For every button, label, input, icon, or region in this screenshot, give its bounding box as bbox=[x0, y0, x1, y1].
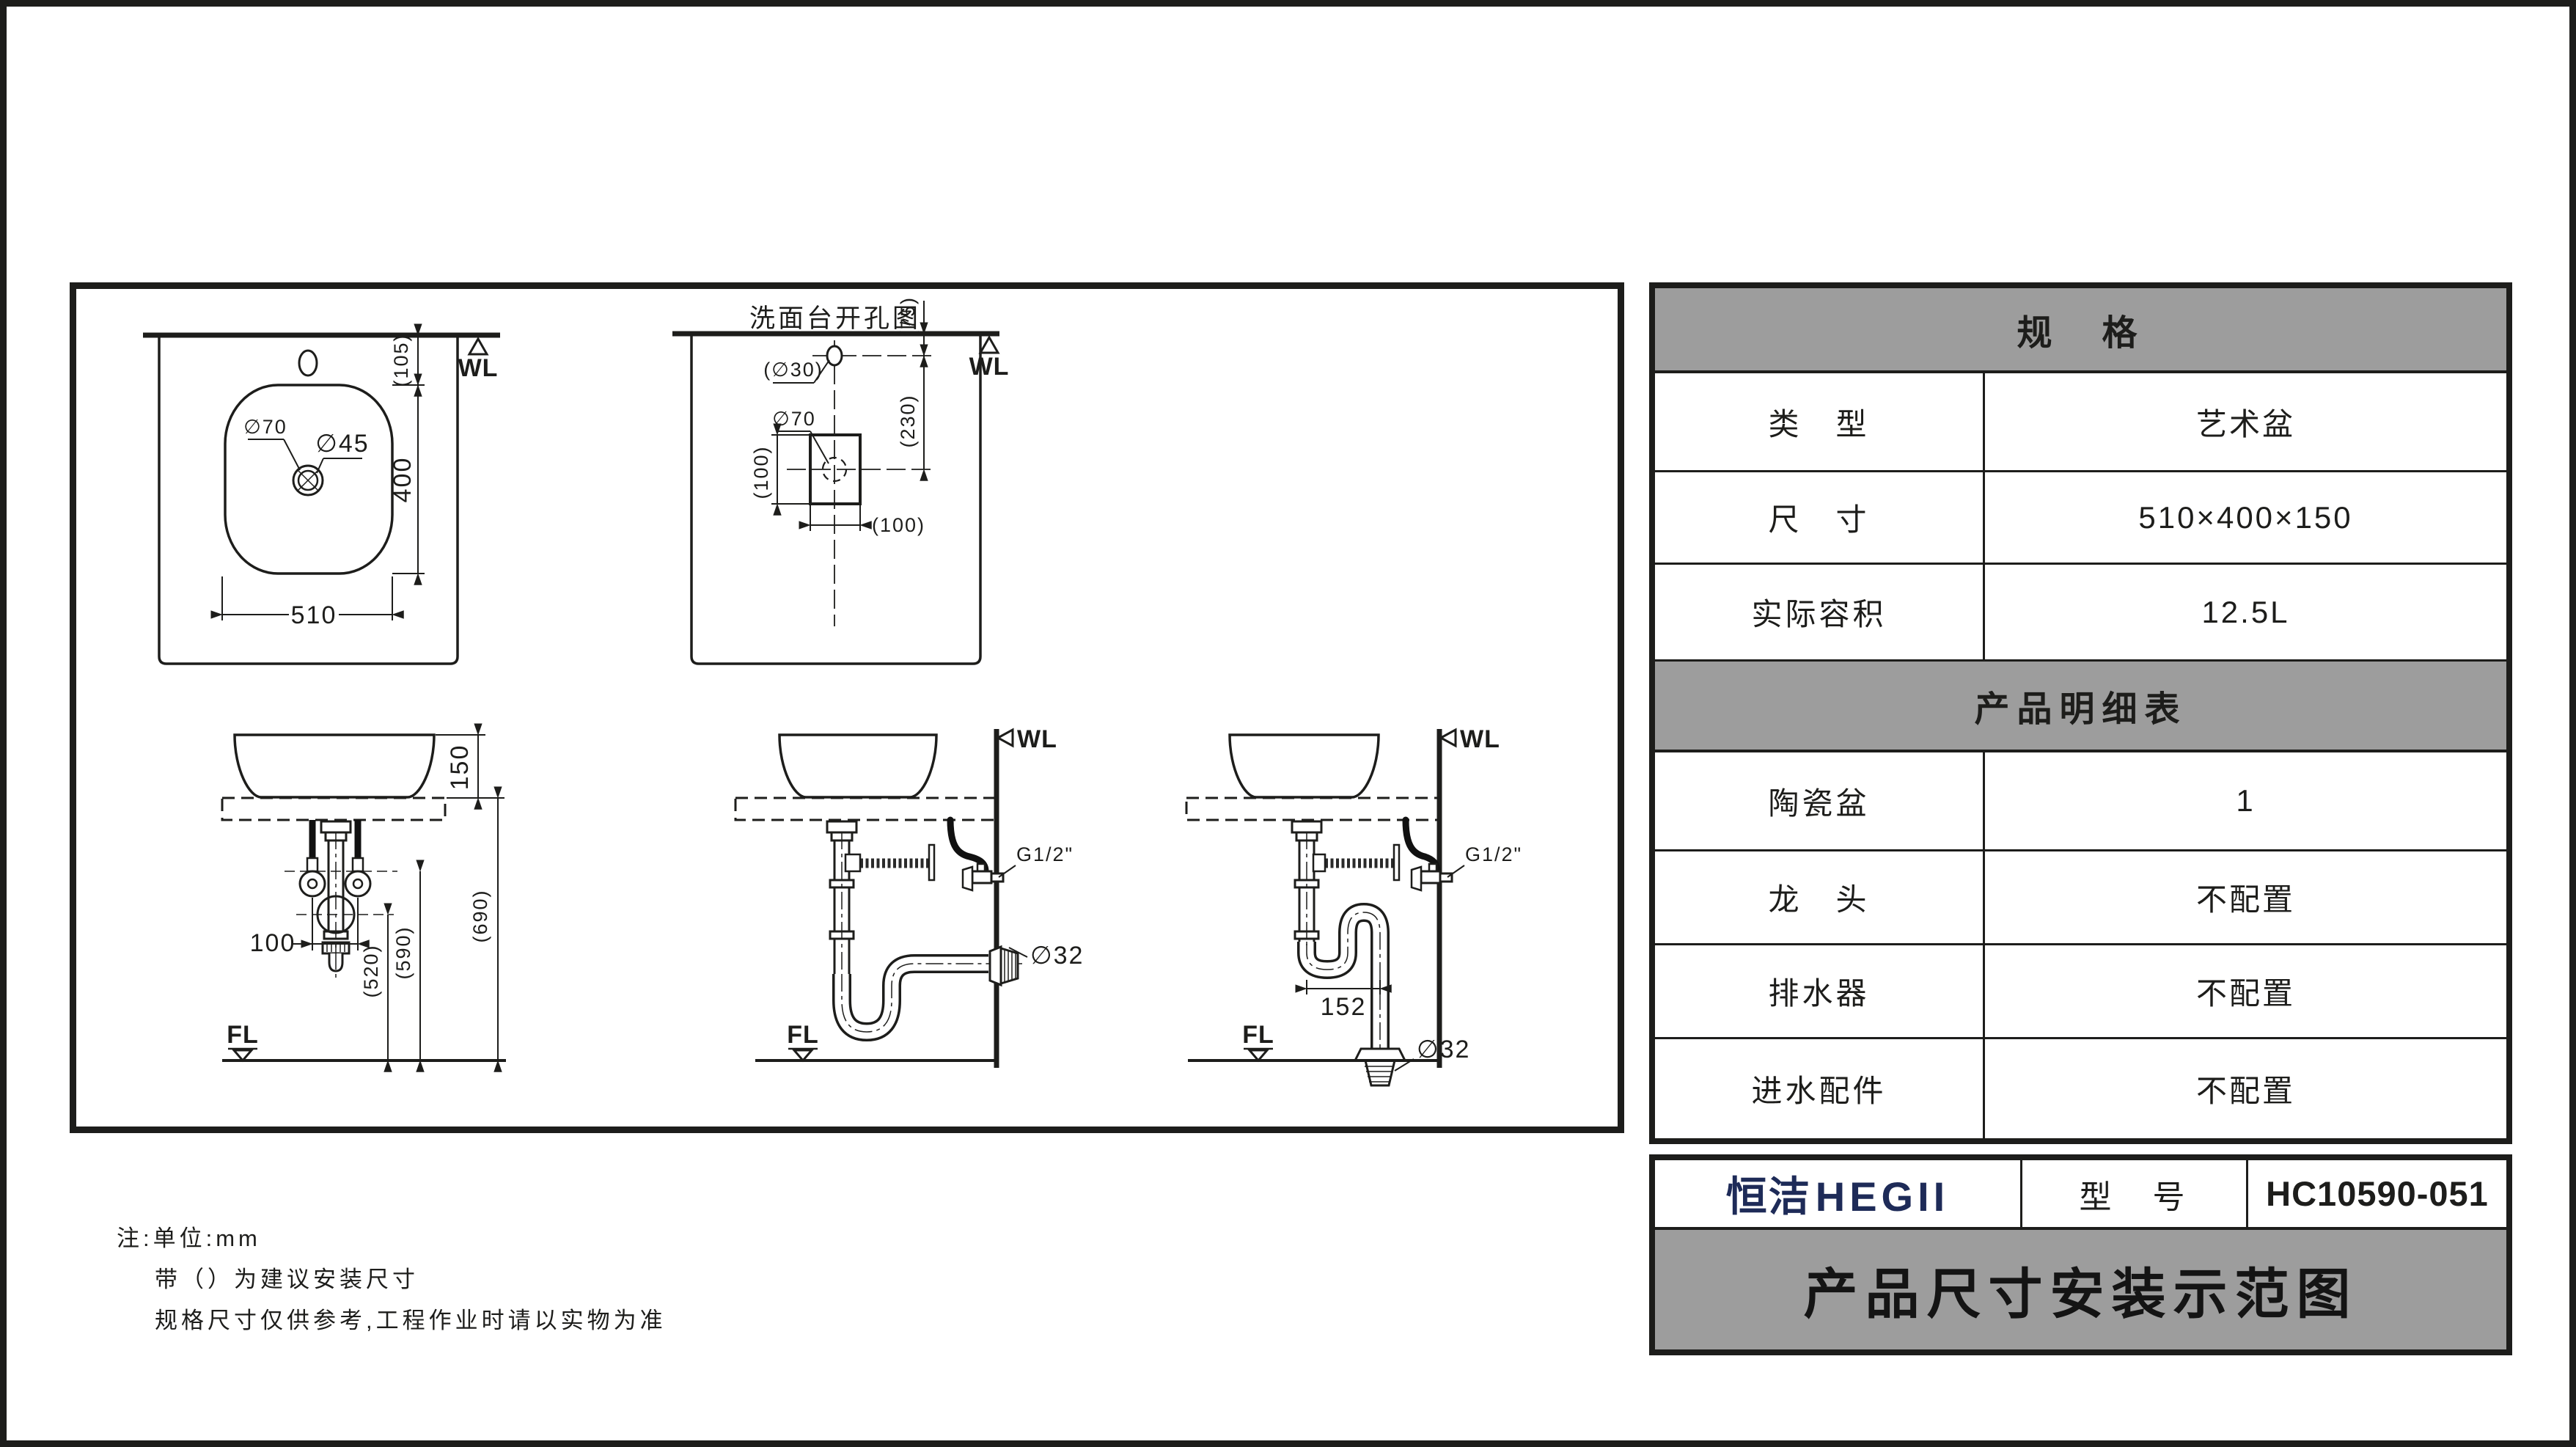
row-label: 尺 寸 bbox=[1655, 472, 1985, 563]
wall-level-marker-icon bbox=[1441, 730, 1456, 746]
document-title: 产品尺寸安装示范图 bbox=[1655, 1230, 2506, 1349]
drain-dia-label: ∅70 bbox=[243, 416, 287, 438]
model-label: 型 号 bbox=[2022, 1160, 2248, 1227]
table-row: 排水器 不配置 bbox=[1655, 945, 2506, 1039]
drawing-frame: WL ∅70 ∅45 (105) 400 bbox=[70, 282, 1624, 1133]
row-value: 不配置 bbox=[1985, 1039, 2506, 1138]
brand-en: HEGII bbox=[1816, 1173, 1949, 1220]
cutout-view-title: 洗面台开孔图 bbox=[749, 304, 921, 333]
note-line: 注:单位:mm bbox=[117, 1218, 667, 1259]
supply-thread-label: G1/2" bbox=[1016, 843, 1074, 865]
dim-100: 100 bbox=[250, 929, 296, 957]
faucet-hole bbox=[827, 346, 842, 365]
dim-400: 400 bbox=[389, 457, 417, 503]
table-row: 进水配件 不配置 bbox=[1655, 1039, 2506, 1138]
title-block: 恒洁HEGII 型 号 HC10590-051 产品尺寸安装示范图 bbox=[1649, 1154, 2512, 1355]
note-line: 规格尺寸仅供参考,工程作业时请以实物为准 bbox=[155, 1300, 667, 1341]
floor-drain-view: WL 152 bbox=[1186, 725, 1522, 1085]
wall-valve bbox=[1421, 871, 1440, 883]
title-block-top-row: 恒洁HEGII 型 号 HC10590-051 bbox=[1655, 1160, 2506, 1230]
drain-dia-label: ∅32 bbox=[1030, 942, 1084, 970]
supply-thread-label: G1/2" bbox=[1465, 843, 1522, 865]
floor-level-marker-icon bbox=[794, 1050, 812, 1060]
dim-100-v: (100) bbox=[750, 445, 772, 499]
note-line: 带（）为建议安装尺寸 bbox=[155, 1259, 667, 1300]
row-label: 排水器 bbox=[1655, 945, 1985, 1037]
vessel-basin bbox=[779, 735, 936, 797]
row-value: 1 bbox=[1985, 752, 2506, 849]
installation-diagram-sheet: WL ∅70 ∅45 (105) 400 bbox=[0, 0, 2576, 1447]
technical-drawing: WL ∅70 ∅45 (105) 400 bbox=[76, 289, 1618, 1127]
wall-valve bbox=[972, 871, 991, 883]
brand-logo-text: 恒洁HEGII bbox=[1726, 1164, 1949, 1223]
drain-dia-label: ∅70 bbox=[772, 408, 816, 430]
table-row: 龙 头 不配置 bbox=[1655, 851, 2506, 945]
wall-level-marker-icon bbox=[980, 337, 998, 353]
angle-valve-right bbox=[345, 871, 370, 896]
countertop-outline bbox=[691, 334, 980, 664]
faucet-hole bbox=[299, 351, 317, 376]
front-view: 100 150 (690) (590) (520) FL bbox=[222, 735, 506, 1060]
table-row: 实际容积 12.5L bbox=[1655, 565, 2506, 662]
row-value: 510×400×150 bbox=[1985, 472, 2506, 563]
wall-drain-view: WL bbox=[735, 725, 1084, 1068]
dim-520: (520) bbox=[360, 944, 382, 997]
row-value: 不配置 bbox=[1985, 851, 2506, 943]
floor-level-marker-icon bbox=[1250, 1050, 1267, 1060]
floor-level-label: FL bbox=[227, 1021, 259, 1049]
countertop-section bbox=[1186, 798, 1439, 820]
table-row: 陶瓷盆 1 bbox=[1655, 752, 2506, 851]
plan-view: WL ∅70 ∅45 (105) 400 bbox=[143, 333, 500, 664]
wall-level-label: WL bbox=[1460, 725, 1500, 753]
wall-level-label: WL bbox=[969, 353, 1010, 381]
faucet-hole-dia-label: (∅30) bbox=[763, 359, 823, 381]
row-value: 12.5L bbox=[1985, 565, 2506, 659]
row-value: 不配置 bbox=[1985, 945, 2506, 1037]
drain-wall-flange bbox=[990, 947, 1001, 985]
dim-75: (75) bbox=[897, 296, 919, 337]
floor-level-label: FL bbox=[787, 1021, 819, 1049]
table-row: 类 型 艺术盆 bbox=[1655, 373, 2506, 472]
spec-table: 规 格 类 型 艺术盆 尺 寸 510×400×150 实际容积 12.5L 产… bbox=[1649, 282, 2512, 1144]
dim-100-h: (100) bbox=[872, 514, 925, 536]
dim-230: (230) bbox=[897, 394, 919, 447]
row-label: 类 型 bbox=[1655, 373, 1985, 470]
drain-floor-flange bbox=[1355, 1049, 1405, 1060]
p-trap bbox=[842, 964, 988, 1032]
brand-cn: 恒洁 bbox=[1726, 1173, 1811, 1220]
dim-152: 152 bbox=[1321, 993, 1367, 1021]
spec-table-header: 规 格 bbox=[1655, 288, 2506, 373]
wall-level-marker-icon bbox=[469, 339, 487, 354]
countertop-section bbox=[222, 798, 445, 820]
dim-690: (690) bbox=[469, 889, 491, 942]
floor-level-marker-icon bbox=[234, 1050, 252, 1060]
wall-level-marker-icon bbox=[998, 730, 1013, 746]
wall-level-label: WL bbox=[458, 354, 499, 382]
detail-table-header: 产品明细表 bbox=[1655, 662, 2506, 752]
angle-valve-left bbox=[300, 871, 325, 896]
notes: 注:单位:mm 带（）为建议安装尺寸 规格尺寸仅供参考,工程作业时请以实物为准 bbox=[117, 1218, 667, 1341]
brand-logo: 恒洁HEGII bbox=[1655, 1160, 2022, 1227]
wall-level-label: WL bbox=[1017, 725, 1057, 753]
dim-150: 150 bbox=[446, 744, 474, 791]
model-number: HC10590-051 bbox=[2248, 1160, 2506, 1227]
row-label: 进水配件 bbox=[1655, 1039, 1985, 1138]
vessel-basin bbox=[1230, 735, 1379, 797]
countertop-section bbox=[735, 798, 997, 820]
row-label: 实际容积 bbox=[1655, 565, 1985, 659]
drain-inner-dia-label: ∅45 bbox=[315, 430, 369, 458]
cutout-view: 洗面台开孔图 WL (∅30) ∅70 (100) bbox=[672, 296, 1009, 664]
dim-105: (105) bbox=[390, 333, 412, 387]
table-row: 尺 寸 510×400×150 bbox=[1655, 472, 2506, 565]
dim-590: (590) bbox=[392, 926, 414, 979]
vessel-basin bbox=[235, 735, 434, 797]
row-value: 艺术盆 bbox=[1985, 373, 2506, 470]
floor-level-label: FL bbox=[1242, 1021, 1274, 1049]
row-label: 龙 头 bbox=[1655, 851, 1985, 943]
dim-510: 510 bbox=[291, 601, 337, 629]
row-label: 陶瓷盆 bbox=[1655, 752, 1985, 849]
